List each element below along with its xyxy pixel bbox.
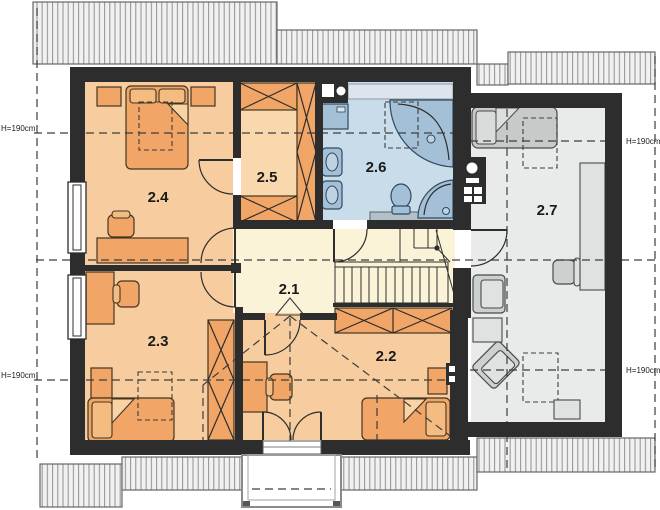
radiator-niche — [446, 363, 457, 385]
room-label-2-2: 2.2 — [376, 348, 397, 365]
cabinet — [554, 400, 580, 419]
desk-chair — [113, 281, 139, 307]
sink-basin — [326, 186, 338, 204]
room-label-2-4: 2.4 — [148, 189, 170, 206]
pillow — [130, 89, 156, 103]
floor-plan-canvas: 2.1 2.2 2.3 2.4 2.5 2.6 2.7 H=190cm H=19… — [0, 0, 660, 510]
washing-machine-detail — [337, 107, 345, 112]
balcony — [242, 455, 341, 507]
pillow — [92, 402, 112, 438]
shower-drain — [443, 208, 450, 215]
office-chair — [553, 258, 580, 286]
roof-window — [348, 84, 453, 99]
pillow — [476, 111, 496, 144]
side-table — [473, 318, 502, 342]
newel-post — [434, 245, 439, 250]
room-label-2-5: 2.5 — [257, 169, 278, 186]
bathtub-drain — [427, 135, 435, 143]
pillow — [426, 402, 446, 436]
sink-basin — [326, 153, 338, 171]
chimney-stack — [459, 157, 486, 204]
desk — [97, 238, 188, 263]
floor-plan-drawing: 2.1 2.2 2.3 2.4 2.5 2.6 2.7 H=190cm H=19… — [0, 0, 660, 510]
nightstand — [428, 368, 447, 394]
desk — [86, 272, 114, 324]
nightstand — [91, 368, 112, 398]
pillow — [159, 89, 185, 103]
height-label-right-top: H=190cm — [626, 137, 660, 146]
height-label-left-bottom: H=190cm — [1, 371, 36, 380]
room-label-2-6: 2.6 — [366, 159, 387, 176]
counter — [580, 163, 605, 290]
room-label-2-1: 2.1 — [279, 281, 300, 298]
desk-chair — [266, 374, 292, 400]
desk-chair — [108, 211, 134, 237]
window — [68, 182, 86, 253]
nightstand — [191, 87, 215, 106]
room-label-2-7: 2.7 — [537, 202, 558, 219]
window — [68, 275, 86, 339]
room-label-2-3: 2.3 — [148, 333, 169, 350]
wardrobe — [335, 308, 452, 333]
nightstand — [97, 87, 121, 106]
toilet — [391, 184, 411, 214]
height-label-right-bottom: H=190cm — [626, 366, 660, 375]
height-label-left-top: H=190cm — [1, 124, 36, 133]
armchair — [473, 275, 505, 313]
